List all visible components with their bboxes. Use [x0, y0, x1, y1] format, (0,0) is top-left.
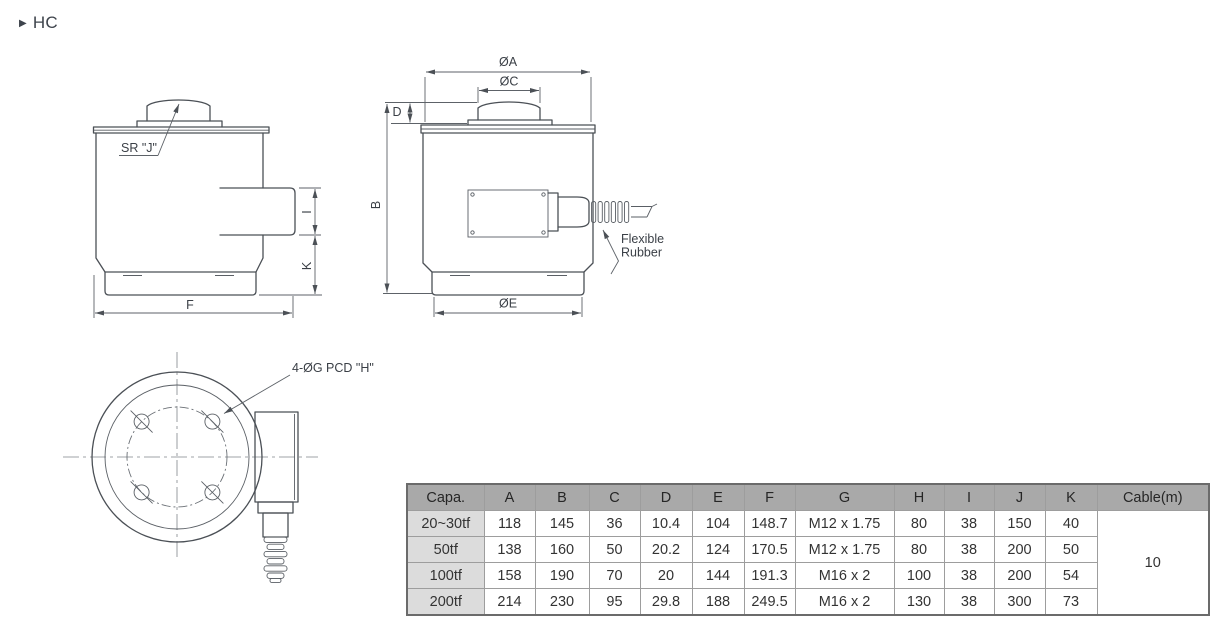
- gland-neck: [548, 193, 558, 231]
- dome-cap: [147, 100, 210, 121]
- nameplate-screw: [542, 231, 545, 234]
- table-cell: 148.7: [744, 511, 795, 537]
- dim-label-d: D: [392, 105, 401, 119]
- table-header-cell: Cable(m): [1097, 484, 1209, 511]
- rubber-rib: [264, 566, 287, 571]
- cable-boss: [220, 188, 295, 235]
- leader-arrow: [603, 230, 619, 274]
- rubber-rib: [598, 202, 602, 223]
- table-header-row: Capa. A B C D E F G H I J K Cable(m): [407, 484, 1209, 511]
- table-cell: 104: [692, 511, 744, 537]
- table-cell: 200: [994, 563, 1045, 589]
- table-cell: 80: [894, 537, 944, 563]
- table-row: 100tf 158 190 70 20 144 191.3 M16 x 2 10…: [407, 563, 1209, 589]
- dim-label-a: ØA: [499, 55, 518, 69]
- table-cell: 230: [535, 589, 589, 616]
- table-cell: 118: [484, 511, 535, 537]
- table-cell: 138: [484, 537, 535, 563]
- capacity-cell: 200tf: [407, 589, 484, 616]
- table-cell: 300: [994, 589, 1045, 616]
- cap-step: [137, 121, 222, 127]
- table-cell: M12 x 1.75: [795, 511, 894, 537]
- flexible-rubber-label: Rubber: [621, 246, 662, 260]
- flexible-rubber-label: Flexible: [621, 232, 664, 246]
- cable-length-cell: 10: [1097, 511, 1209, 616]
- table-cell: 249.5: [744, 589, 795, 616]
- table-cell: 145: [535, 511, 589, 537]
- table-header-cell: I: [944, 484, 994, 511]
- cap-step: [468, 120, 552, 125]
- table-header-cell: Capa.: [407, 484, 484, 511]
- rubber-tip: [270, 578, 281, 582]
- table-cell: 188: [692, 589, 744, 616]
- table-cell: M16 x 2: [795, 563, 894, 589]
- table-cell: 80: [894, 511, 944, 537]
- rubber-rib: [264, 537, 287, 542]
- capacity-cell: 50tf: [407, 537, 484, 563]
- table-cell: 100: [894, 563, 944, 589]
- dim-label-i: I: [300, 210, 314, 213]
- gland-top: [258, 502, 293, 513]
- dim-label-c: ØC: [500, 75, 519, 89]
- gland-barrel: [263, 513, 288, 537]
- table-row: 200tf 214 230 95 29.8 188 249.5 M16 x 2 …: [407, 589, 1209, 616]
- table-cell: 20: [640, 563, 692, 589]
- sr-j-label: SR "J": [121, 141, 157, 155]
- table-cell: 158: [484, 563, 535, 589]
- dim-label-k: K: [300, 261, 314, 270]
- table-cell: 190: [535, 563, 589, 589]
- table-cell: 191.3: [744, 563, 795, 589]
- dim-label-f: F: [186, 298, 194, 312]
- table-cell: 50: [1045, 537, 1097, 563]
- rubber-rib: [264, 551, 287, 556]
- front-view-drawing: Flexible Rubber ØA ØC D B: [369, 55, 664, 317]
- nameplate: [468, 190, 548, 237]
- table-cell: 10.4: [640, 511, 692, 537]
- nameplate-screw: [542, 193, 545, 196]
- table-cell: 170.5: [744, 537, 795, 563]
- body-left-edge: [96, 133, 105, 272]
- table-header-cell: H: [894, 484, 944, 511]
- table-cell: 95: [589, 589, 640, 616]
- table-cell: 144: [692, 563, 744, 589]
- table-cell: 70: [589, 563, 640, 589]
- rubber-rib: [267, 544, 284, 549]
- table-cell: 38: [944, 563, 994, 589]
- dim-label-b: B: [369, 201, 383, 209]
- nameplate-screw: [471, 231, 474, 234]
- table-cell: M12 x 1.75: [795, 537, 894, 563]
- table-cell: 200: [994, 537, 1045, 563]
- body-left-edge: [423, 133, 432, 272]
- table-row: 20~30tf 118 145 36 10.4 104 148.7 M12 x …: [407, 511, 1209, 537]
- table-cell: 54: [1045, 563, 1097, 589]
- cable-break: [631, 204, 657, 217]
- table-cell: 20.2: [640, 537, 692, 563]
- dome-cap: [478, 102, 540, 120]
- table-cell: 214: [484, 589, 535, 616]
- table-cell: 160: [535, 537, 589, 563]
- rubber-rib: [605, 202, 609, 223]
- table-cell: 38: [944, 537, 994, 563]
- table-header-cell: A: [484, 484, 535, 511]
- table-cell: 73: [1045, 589, 1097, 616]
- table-cell: 38: [944, 511, 994, 537]
- flexible-rubber-corrugation: [264, 537, 287, 583]
- dim-label-e: ØE: [499, 297, 517, 311]
- flexible-rubber-corrugation: [592, 202, 629, 223]
- left-side-view-drawing: SR "J" I K F: [94, 100, 323, 318]
- table-header-cell: K: [1045, 484, 1097, 511]
- table-cell: 150: [994, 511, 1045, 537]
- rubber-rib: [625, 202, 629, 223]
- rubber-rib: [267, 559, 284, 564]
- capacity-cell: 20~30tf: [407, 511, 484, 537]
- table-cell: 38: [944, 589, 994, 616]
- rubber-rib: [618, 202, 622, 223]
- table-cell: 36: [589, 511, 640, 537]
- table-cell: 50: [589, 537, 640, 563]
- table-cell: 40: [1045, 511, 1097, 537]
- rubber-rib: [611, 202, 615, 223]
- table-header-cell: G: [795, 484, 894, 511]
- table-header-cell: J: [994, 484, 1045, 511]
- table-header-cell: F: [744, 484, 795, 511]
- capacity-cell: 100tf: [407, 563, 484, 589]
- page: ▶ HC SR "J": [0, 0, 1212, 622]
- table-row: 50tf 138 160 50 20.2 124 170.5 M12 x 1.7…: [407, 537, 1209, 563]
- bolt-holes-label: 4-ØG PCD "H": [292, 361, 374, 375]
- nameplate-screw: [471, 193, 474, 196]
- table-header-cell: B: [535, 484, 589, 511]
- rubber-rib: [267, 573, 284, 578]
- bottom-view-drawing: 4-ØG PCD "H": [63, 352, 374, 583]
- gland-body: [558, 197, 589, 227]
- table-cell: M16 x 2: [795, 589, 894, 616]
- table-cell: 29.8: [640, 589, 692, 616]
- table-header-cell: D: [640, 484, 692, 511]
- table-cell: 130: [894, 589, 944, 616]
- table-cell: 124: [692, 537, 744, 563]
- table-header-cell: E: [692, 484, 744, 511]
- table-header-cell: C: [589, 484, 640, 511]
- spec-table: Capa. A B C D E F G H I J K Cable(m) 2: [406, 483, 1210, 616]
- body-right-edge: [256, 133, 263, 272]
